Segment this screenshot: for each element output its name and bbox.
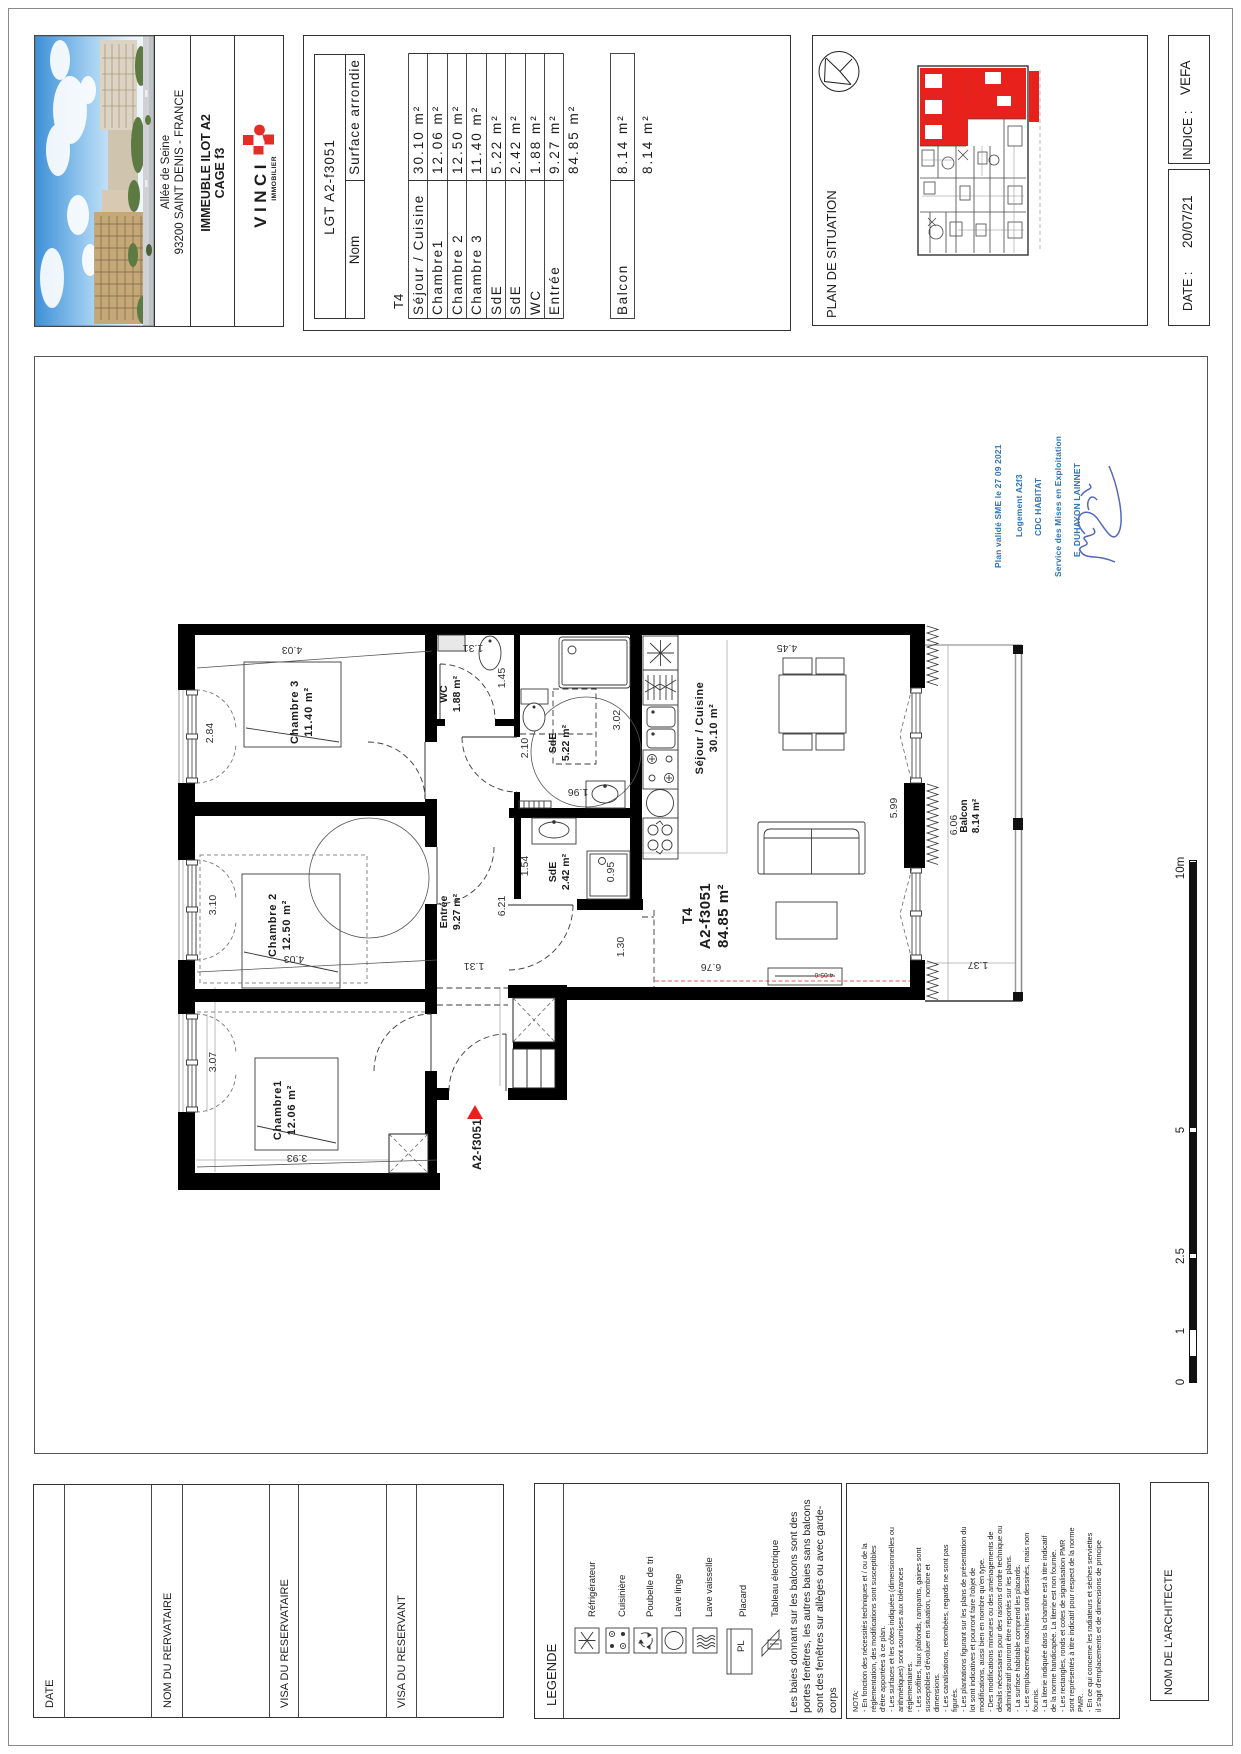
svg-text:Cuisinière: Cuisinière — [617, 1575, 628, 1617]
svg-text:PMR.: PMR. — [1076, 1694, 1085, 1712]
svg-text:84.85 m²: 84.85 m² — [715, 884, 732, 948]
svg-text:8.14 m²: 8.14 m² — [615, 114, 630, 174]
svg-text:PL: PL — [736, 1640, 747, 1652]
svg-text:Chambre1: Chambre1 — [272, 1080, 284, 1140]
svg-text:12.06 m²: 12.06 m² — [286, 1085, 298, 1135]
svg-text:LGT A2-f3051: LGT A2-f3051 — [322, 139, 337, 235]
svg-text:11.40 m²: 11.40 m² — [469, 106, 484, 174]
svg-text:30.10 m²: 30.10 m² — [411, 105, 426, 174]
svg-text:1.96: 1.96 — [568, 786, 589, 798]
svg-text:1.37: 1.37 — [968, 959, 989, 971]
svg-text:Entrée: Entrée — [438, 896, 450, 929]
svg-text:figurés.: figurés. — [950, 1688, 959, 1712]
svg-text:IMMEUBLE ILOT A2: IMMEUBLE ILOT A2 — [199, 114, 213, 232]
svg-text:modifications, aussi bien en n: modifications, aussi bien en nombre qu'e… — [977, 1558, 986, 1712]
svg-text:d'être apportées à ce plan.: d'être apportées à ce plan. — [878, 1626, 887, 1712]
svg-text:Séjour / Cuisine: Séjour / Cuisine — [694, 682, 706, 775]
svg-text:- Les surfaces et les côtes in: - Les surfaces et les côtes indiquées (d… — [887, 1527, 896, 1712]
svg-text:LEGENDE: LEGENDE — [544, 1644, 559, 1706]
svg-text:5.22 m²: 5.22 m² — [489, 114, 504, 174]
svg-text:CAGE f3: CAGE f3 — [213, 148, 227, 199]
svg-text:9.27 m²: 9.27 m² — [451, 893, 463, 930]
svg-text:Lave vaisselle: Lave vaisselle — [704, 1557, 715, 1617]
svg-text:Chambre 3: Chambre 3 — [469, 234, 484, 315]
svg-text:corps: corps — [827, 1687, 839, 1713]
svg-text:- Les soffites, faux plafonds,: - Les soffites, faux plafonds, rampants,… — [914, 1547, 923, 1712]
svg-text:CDC HABITAT: CDC HABITAT — [1033, 477, 1043, 536]
svg-text:4-05-0: 4-05-0 — [814, 971, 833, 978]
svg-text:SdE: SdE — [547, 862, 559, 882]
svg-text:10m: 10m — [1175, 857, 1187, 879]
svg-text:- Les rectangles, ronds et cot: - Les rectangles, ronds et cotes de sign… — [1058, 1540, 1067, 1712]
svg-text:Réfrigérateur: Réfrigérateur — [587, 1562, 598, 1617]
svg-text:1.30: 1.30 — [615, 937, 627, 958]
svg-text:93200 SAINT DENIS - FRANCE: 93200 SAINT DENIS - FRANCE — [174, 89, 186, 254]
svg-text:Entrée: Entrée — [547, 266, 562, 315]
svg-text:2.42 m²: 2.42 m² — [508, 114, 523, 174]
svg-text:0: 0 — [1175, 1379, 1187, 1385]
svg-text:6.76: 6.76 — [701, 961, 722, 973]
svg-text:A2-f3051: A2-f3051 — [697, 883, 714, 950]
svg-text:3.10: 3.10 — [207, 895, 219, 916]
svg-text:Placard: Placard — [738, 1585, 749, 1617]
svg-text:WC: WC — [438, 685, 450, 703]
svg-text:DATE: DATE — [44, 1679, 56, 1708]
svg-text:Chambre 2: Chambre 2 — [450, 234, 465, 315]
svg-text:détails nécessaires pour des r: détails nécessaires pour des raisons d'o… — [995, 1526, 1004, 1712]
svg-text:11.40 m²: 11.40 m² — [303, 687, 315, 737]
svg-text:5.22 m²: 5.22 m² — [560, 724, 572, 761]
svg-text:A2-f3051: A2-f3051 — [472, 1119, 484, 1170]
svg-text:E. DUHAYON LAINNET: E. DUHAYON LAINNET — [1072, 462, 1082, 557]
svg-text:Surface arrondie: Surface arrondie — [347, 59, 362, 175]
svg-text:1.54: 1.54 — [519, 856, 531, 877]
svg-text:12.06 m²: 12.06 m² — [430, 105, 445, 174]
svg-text:1.88 m²: 1.88 m² — [528, 114, 543, 174]
svg-text:PLAN DE SITUATION: PLAN DE SITUATION — [824, 190, 839, 318]
svg-text:IMMOBILIER: IMMOBILIER — [271, 156, 278, 201]
svg-text:DATE :: DATE : — [1181, 272, 1195, 311]
svg-text:- Des modifications mineures o: - Des modifications mineures ou des amén… — [986, 1532, 995, 1713]
svg-text:- Les emplacements machines so: - Les emplacements machines sont dessiné… — [1022, 1533, 1031, 1712]
svg-text:1.45: 1.45 — [496, 668, 508, 689]
svg-text:Les baies donnant sur les balc: Les baies donnant sur les balcons sont d… — [788, 1512, 800, 1713]
svg-text:- La surface habitable compren: - La surface habitable comprend les plac… — [1013, 1564, 1022, 1712]
svg-text:- Les canalisations, retombées: - Les canalisations, retombées, regards … — [941, 1544, 950, 1712]
svg-text:VISA DU RESERVANT: VISA DU RESERVANT — [396, 1595, 408, 1708]
svg-text:Chambre 2: Chambre 2 — [267, 893, 279, 957]
svg-text:2.84: 2.84 — [204, 723, 216, 744]
svg-text:NOM DU RERVATAIRE: NOM DU RERVATAIRE — [162, 1593, 174, 1708]
svg-text:30.10 m²: 30.10 m² — [708, 704, 720, 753]
svg-text:4.03: 4.03 — [282, 644, 303, 656]
svg-text:Poubelle de tri: Poubelle de tri — [645, 1556, 656, 1617]
svg-text:12.50 m²: 12.50 m² — [281, 900, 293, 950]
svg-text:- Les plantations figurant sur: - Les plantations figurant sur les plans… — [959, 1527, 968, 1712]
svg-text:3.93: 3.93 — [287, 1152, 308, 1164]
svg-text:2.10: 2.10 — [519, 738, 531, 759]
svg-text:- En ce qui concerne les radia: - En ce qui concerne les radiateurs et s… — [1085, 1532, 1094, 1712]
svg-text:de la norme handicapée. La lit: de la norme handicapée. La literie est n… — [1049, 1550, 1058, 1712]
svg-text:VISA DU RESERVATAIRE: VISA DU RESERVATAIRE — [279, 1579, 291, 1708]
svg-text:réglementation, des modificati: réglementation, des modifications sont s… — [869, 1545, 878, 1712]
svg-text:VEFA: VEFA — [1178, 60, 1193, 95]
svg-text:dimensions.: dimensions. — [932, 1673, 941, 1712]
svg-text:susceptibles d'évoluer en situ: susceptibles d'évoluer en situation, nom… — [923, 1564, 932, 1712]
svg-text:3.07: 3.07 — [207, 1052, 219, 1073]
svg-text:Allée de Seine: Allée de Seine — [160, 135, 172, 209]
svg-text:1.31: 1.31 — [464, 960, 485, 972]
svg-text:Tableau électrique: Tableau électrique — [770, 1540, 781, 1617]
svg-text:T4: T4 — [391, 294, 406, 309]
svg-text:1.88 m²: 1.88 m² — [451, 675, 463, 712]
svg-text:4.45: 4.45 — [777, 642, 798, 654]
svg-text:5: 5 — [1175, 1127, 1187, 1133]
svg-text:portes fenêtres, les autres ba: portes fenêtres, les autres baies sans b… — [801, 1499, 813, 1713]
svg-text:sont représentés à titre indic: sont représentés à titre indicatif pour … — [1067, 1527, 1076, 1712]
svg-text:Balcon: Balcon — [959, 799, 970, 832]
svg-text:Chambre 3: Chambre 3 — [289, 680, 301, 744]
svg-text:84.85 m²: 84.85 m² — [566, 105, 581, 174]
svg-text:VINCI: VINCI — [251, 160, 270, 228]
svg-text:4.03: 4.03 — [284, 953, 305, 965]
svg-text:- La literie indiquée dans la: - La literie indiquée dans la chambre es… — [1040, 1535, 1049, 1712]
svg-text:8.14 m²: 8.14 m² — [640, 114, 655, 174]
svg-text:Chambre1: Chambre1 — [430, 239, 445, 315]
svg-text:sont des fenêtres sur allèges: sont des fenêtres sur allèges ou avec ga… — [814, 1505, 826, 1713]
svg-text:- En fonction des nécessités t: - En fonction des nécessités techniques … — [860, 1542, 869, 1712]
svg-text:8.14 m²: 8.14 m² — [971, 798, 982, 833]
svg-text:NOM DE L'ARCHITECTE: NOM DE L'ARCHITECTE — [1163, 1569, 1175, 1695]
svg-text:Logement A2f3: Logement A2f3 — [1014, 474, 1024, 537]
svg-text:Balcon: Balcon — [615, 264, 630, 315]
svg-text:9.27 m²: 9.27 m² — [547, 114, 562, 174]
svg-text:Séjour / Cuisine: Séjour / Cuisine — [411, 194, 426, 315]
svg-text:INDICE :: INDICE : — [1181, 111, 1195, 160]
svg-text:SdE: SdE — [547, 733, 559, 753]
svg-text:6.21: 6.21 — [496, 896, 508, 917]
svg-text:administratif pourront être re: administratif pourront être reportés sur… — [1004, 1555, 1013, 1712]
svg-text:2.42 m²: 2.42 m² — [560, 853, 572, 890]
svg-text:1.31: 1.31 — [463, 642, 484, 654]
svg-text:Plan validé SME le 27 09 2021: Plan validé SME le 27 09 2021 — [993, 444, 1003, 568]
svg-text:WC: WC — [528, 289, 543, 315]
svg-text:SdE: SdE — [489, 285, 504, 315]
svg-text:Lave linge: Lave linge — [673, 1574, 684, 1617]
svg-text:6.06: 6.06 — [948, 815, 960, 836]
svg-text:Service des Mises en Exploitat: Service des Mises en Exploitation — [1053, 436, 1063, 577]
svg-text:réglementaires.: réglementaires. — [905, 1662, 914, 1712]
svg-text:3.02: 3.02 — [611, 710, 623, 731]
svg-text:il s'agit d'emplacements et de: il s'agit d'emplacements et de dimension… — [1094, 1540, 1103, 1712]
svg-text:5.99: 5.99 — [888, 798, 900, 819]
svg-text:T4: T4 — [679, 908, 695, 925]
svg-text:Nom: Nom — [347, 236, 362, 265]
svg-text:lot sont indicatives et pourro: lot sont indicatives et pourront faire l… — [968, 1568, 977, 1712]
svg-text:12.50 m²: 12.50 m² — [450, 105, 465, 174]
svg-text:1: 1 — [1175, 1328, 1187, 1334]
svg-text:arithmétiques) sont soumises a: arithmétiques) sont soumises aux toléran… — [896, 1567, 905, 1712]
svg-text:20/07/21: 20/07/21 — [1180, 195, 1195, 248]
svg-text:0.95: 0.95 — [605, 862, 617, 883]
svg-text:SdE: SdE — [508, 285, 523, 315]
svg-text:fournis.: fournis. — [1031, 1688, 1040, 1712]
svg-text:NOTA:: NOTA: — [851, 1690, 860, 1712]
svg-text:2.5: 2.5 — [1175, 1248, 1187, 1264]
